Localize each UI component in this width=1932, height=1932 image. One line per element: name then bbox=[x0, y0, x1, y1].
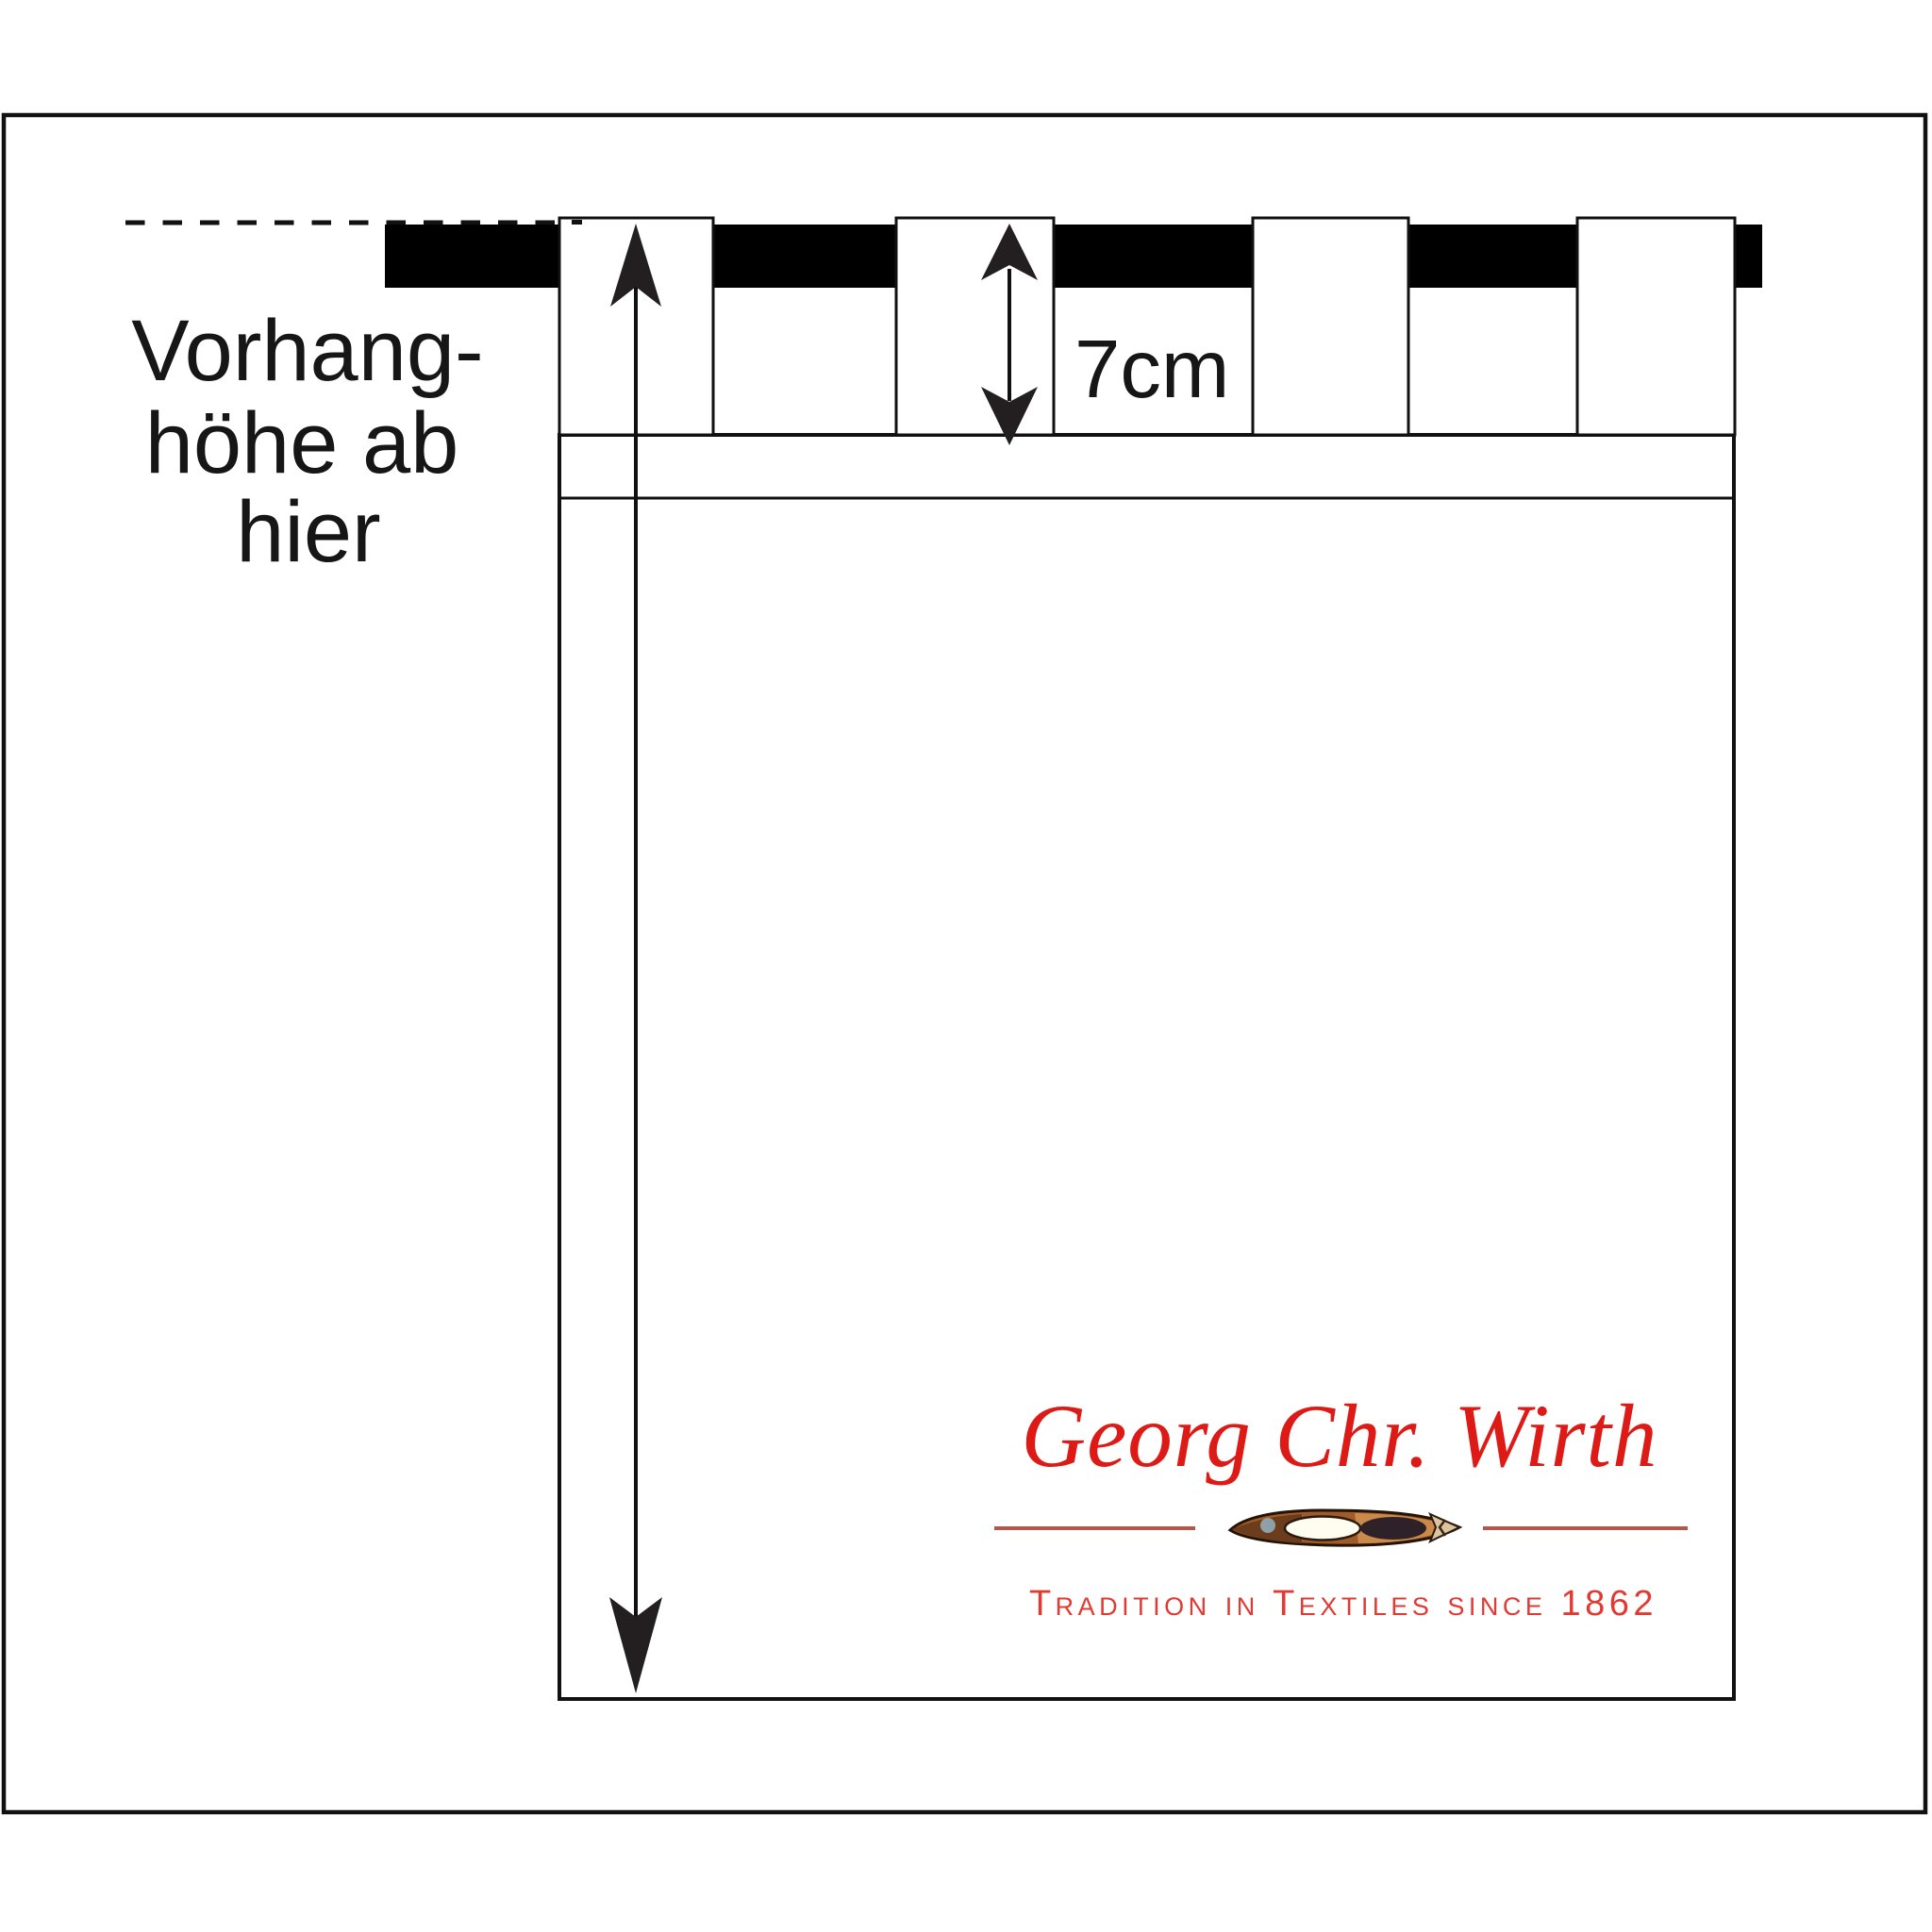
svg-text:Tradition in Textiles since 18: Tradition in Textiles since 1862 bbox=[1029, 1584, 1657, 1624]
svg-text:hier: hier bbox=[236, 484, 380, 580]
svg-text:Georg Chr. Wirth: Georg Chr. Wirth bbox=[1022, 1386, 1658, 1486]
svg-text:höhe ab: höhe ab bbox=[145, 395, 459, 491]
svg-text:7cm: 7cm bbox=[1074, 324, 1229, 415]
svg-text:Vorhang-: Vorhang- bbox=[131, 303, 483, 399]
